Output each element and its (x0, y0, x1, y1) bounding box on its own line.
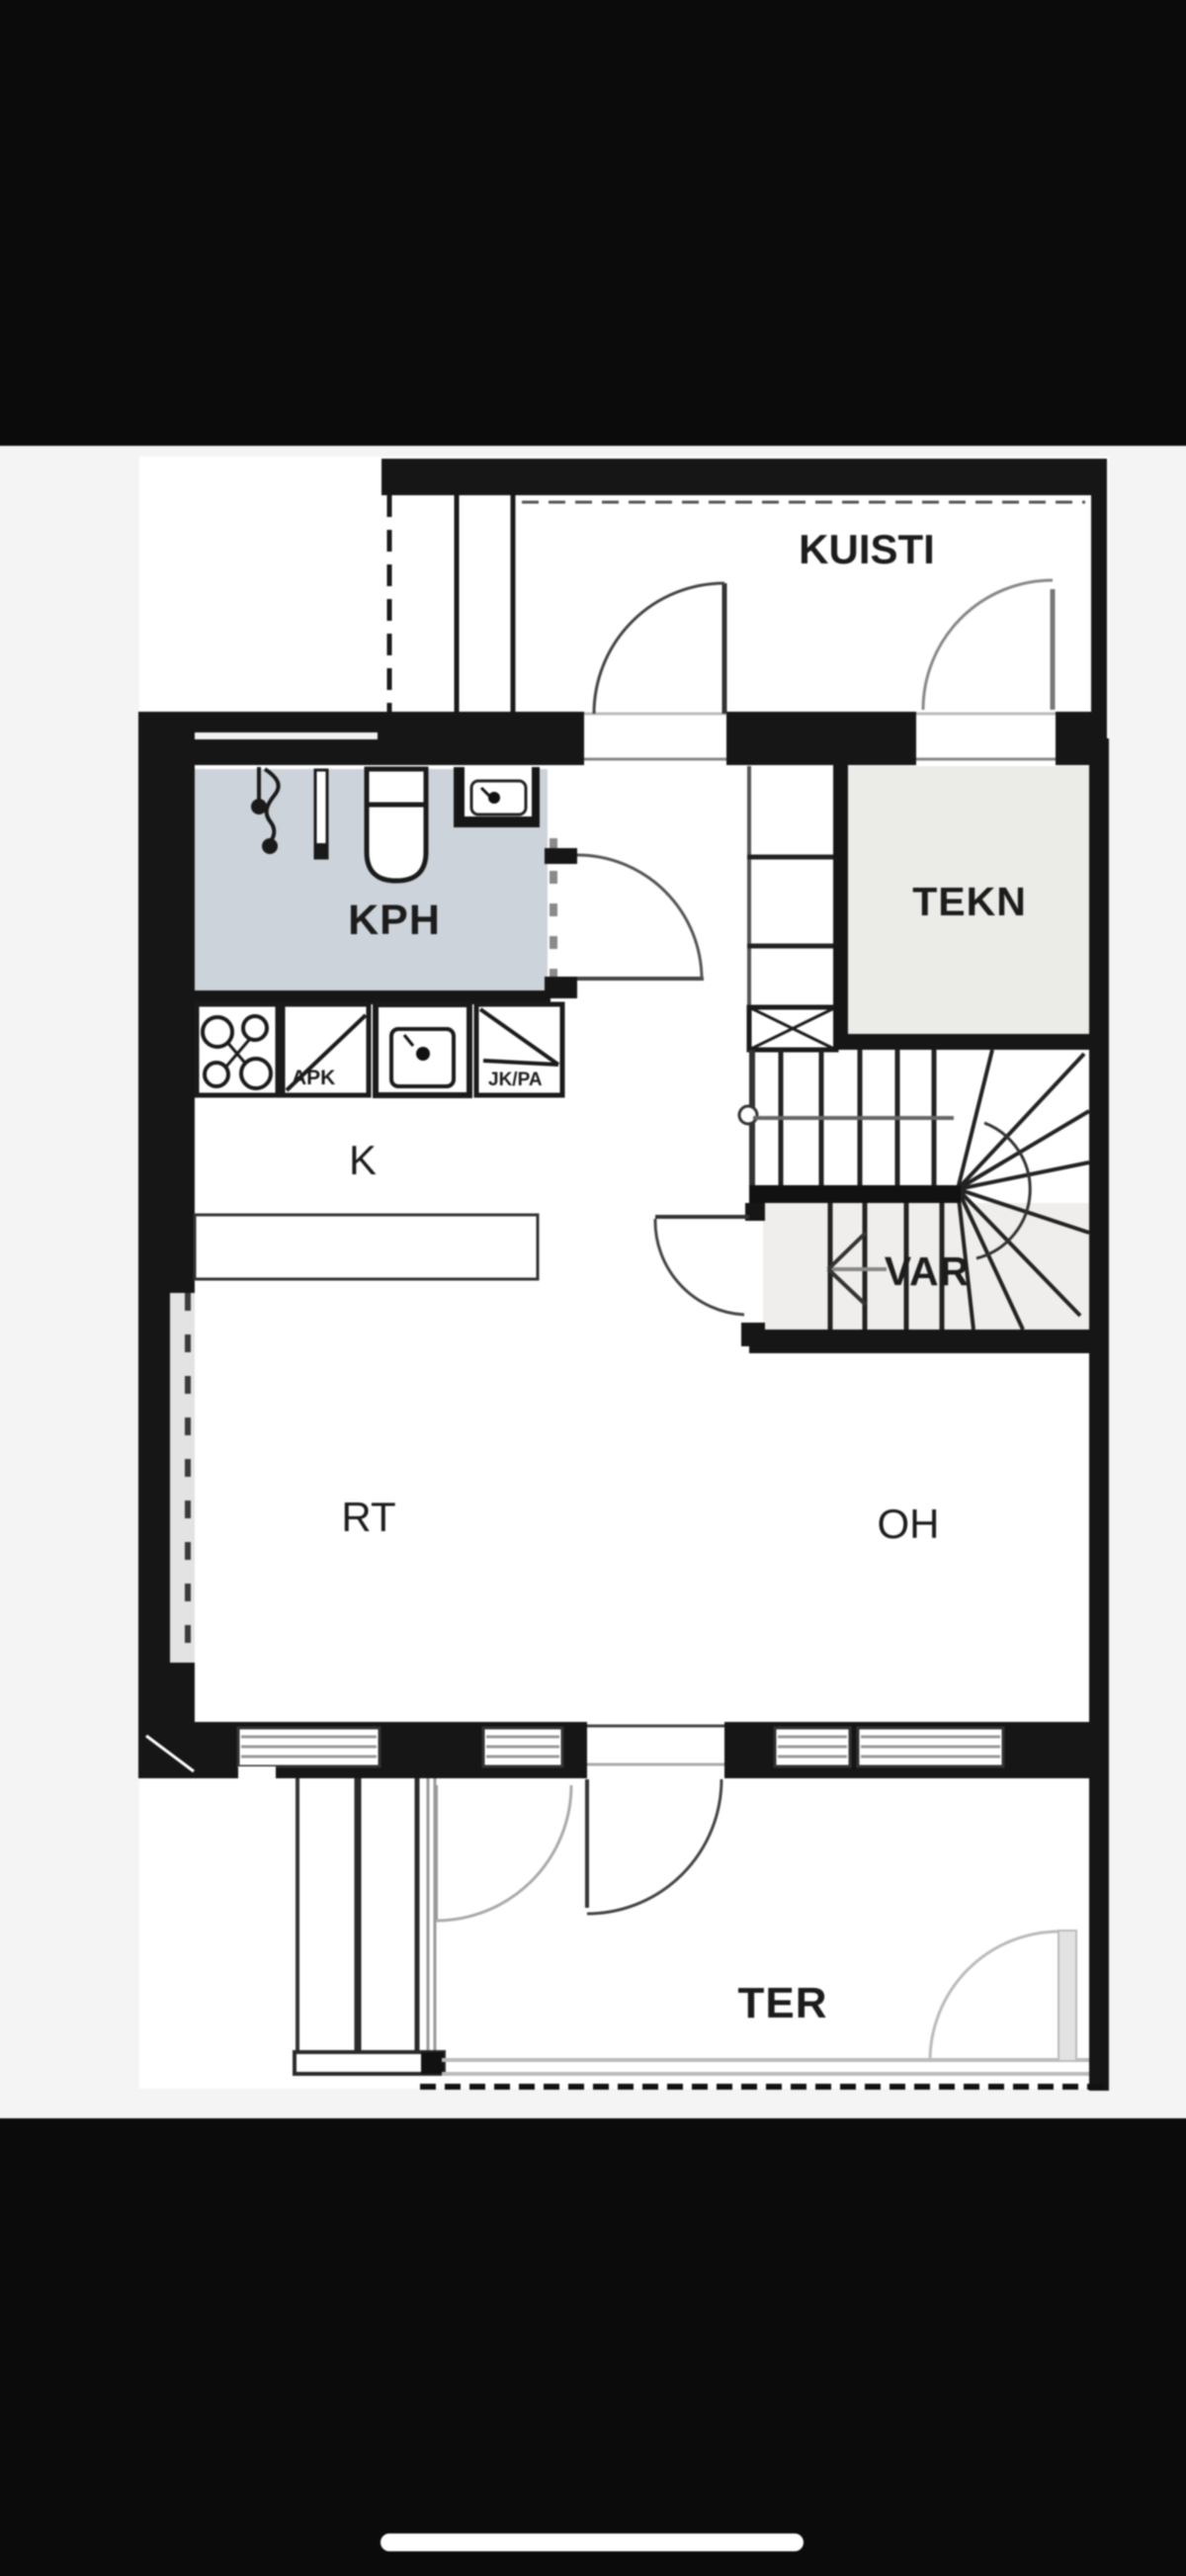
svg-text:KUISTI: KUISTI (799, 526, 935, 572)
svg-text:RT: RT (341, 1494, 395, 1540)
svg-text:VAR: VAR (885, 1248, 971, 1294)
svg-text:TER: TER (738, 1979, 828, 2027)
svg-text:JK/PA: JK/PA (488, 1070, 543, 1090)
svg-text:APK: APK (292, 1067, 335, 1089)
svg-text:TEKN: TEKN (912, 879, 1027, 924)
svg-text:OH: OH (878, 1501, 940, 1547)
svg-text:K: K (349, 1137, 377, 1183)
svg-text:KPH: KPH (348, 897, 441, 944)
